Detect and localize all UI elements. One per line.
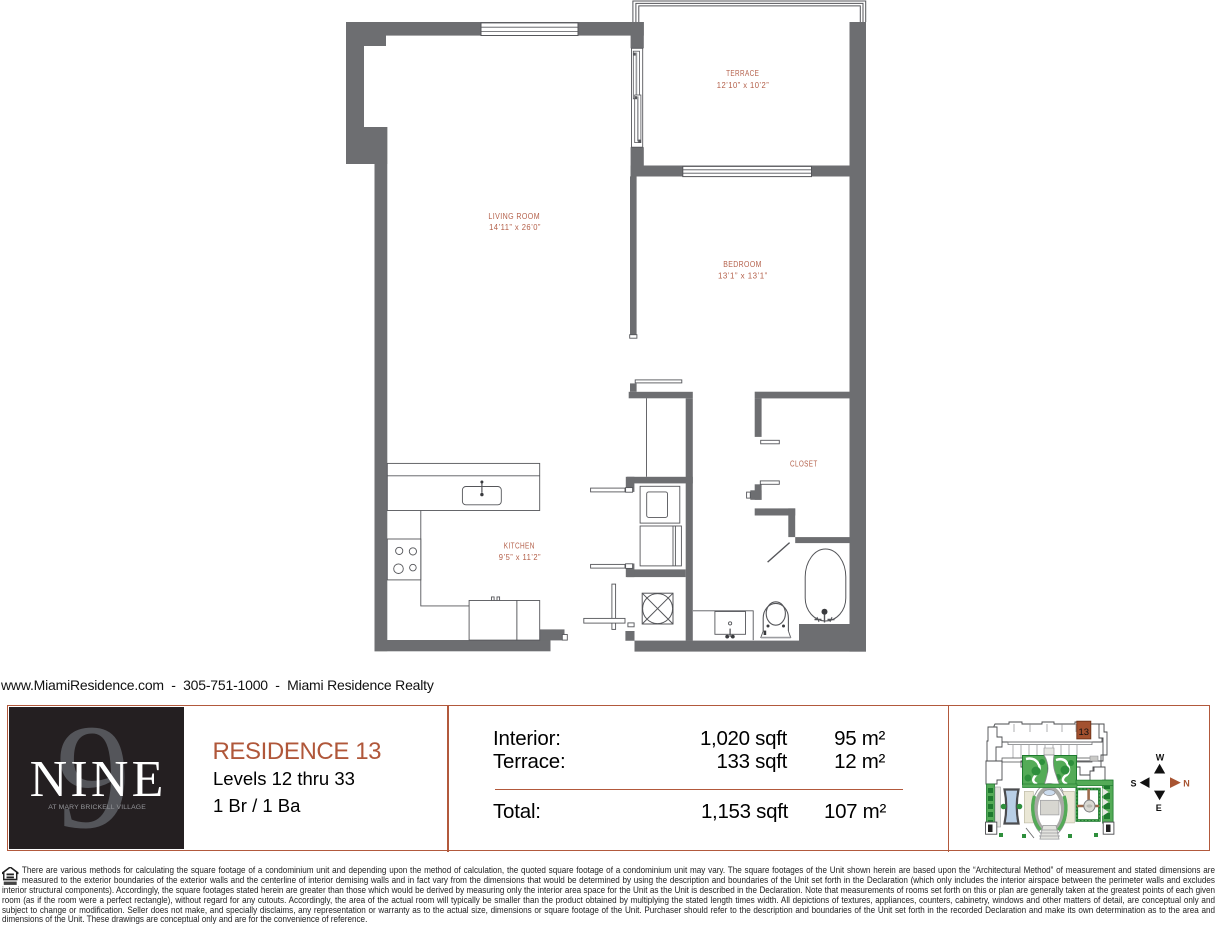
svg-text:BEDROOM: BEDROOM (723, 259, 762, 269)
svg-text:LIVING ROOM: LIVING ROOM (488, 211, 540, 221)
svg-text:KITCHEN: KITCHEN (504, 540, 535, 550)
svg-text:14’11” x 26’0”: 14’11” x 26’0” (489, 222, 541, 232)
svg-text:TERRACE: TERRACE (726, 68, 759, 78)
svg-text:13’1” x 13’1”: 13’1” x 13’1” (718, 271, 768, 281)
svg-text:CLOSET: CLOSET (790, 459, 818, 469)
svg-text:9’5” x 11’2”: 9’5” x 11’2” (499, 552, 541, 562)
svg-text:12’10” x 10’2”: 12’10” x 10’2” (717, 80, 769, 90)
